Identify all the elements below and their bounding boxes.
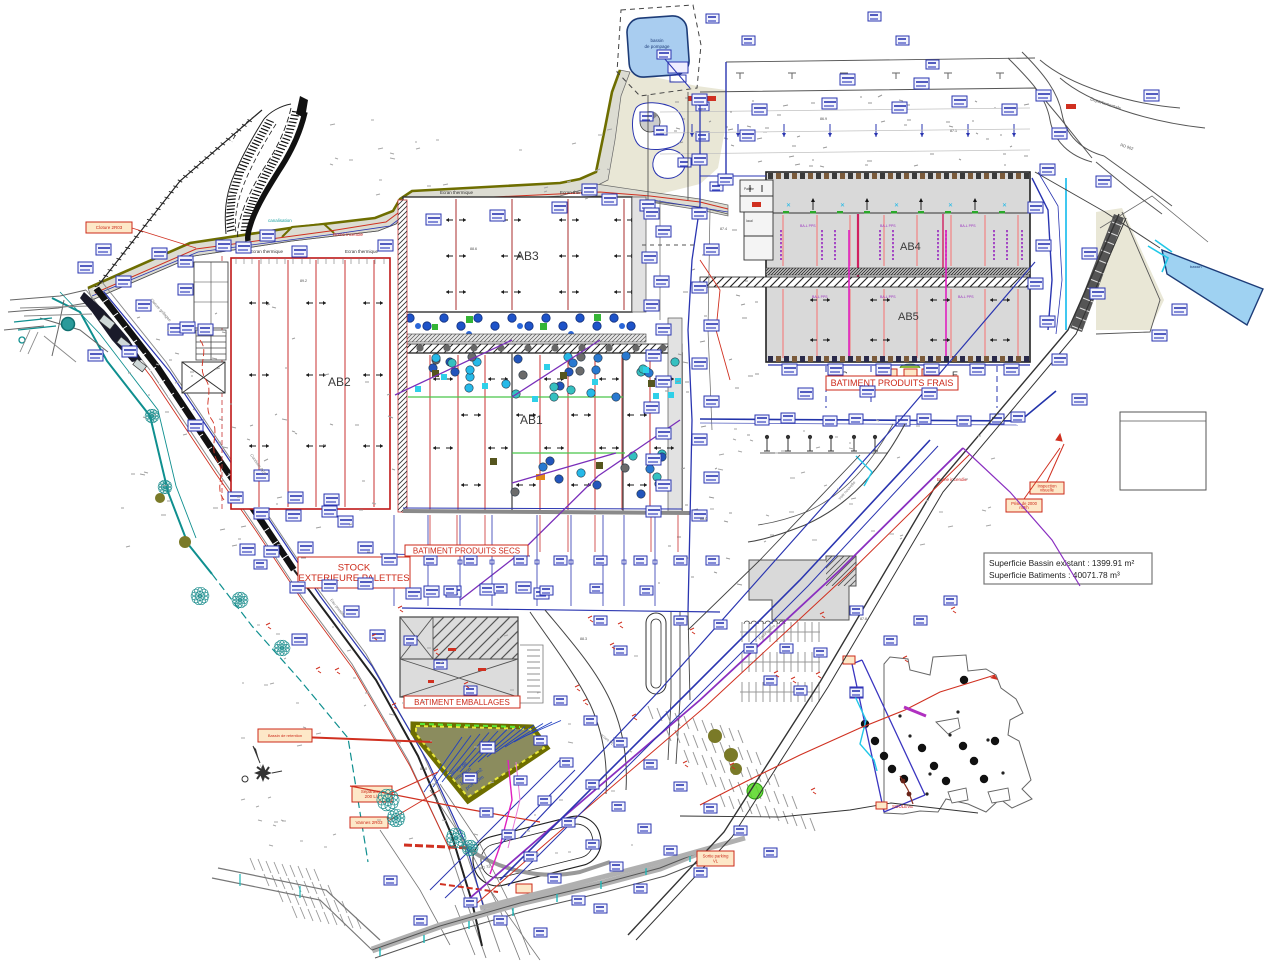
svg-text:Vannes 2R03: Vannes 2R03 <box>356 820 383 825</box>
svg-text:Superficie Bassin existant : 1: Superficie Bassin existant : 1399.91 m² <box>989 558 1134 568</box>
svg-text:86.9: 86.9 <box>820 117 827 121</box>
svg-text:Cloture 2R03: Cloture 2R03 <box>96 225 123 230</box>
svg-text:bassin: bassin <box>1190 264 1202 269</box>
svg-text:BATIMENT EMBALLAGES: BATIMENT EMBALLAGES <box>414 698 510 707</box>
svg-text:BA-L PPS: BA-L PPS <box>812 295 828 299</box>
svg-text:BA-L PPS: BA-L PPS <box>960 224 976 228</box>
svg-text:visuelle: visuelle <box>1040 488 1055 493</box>
svg-text:BA-L PPS: BA-L PPS <box>800 224 816 228</box>
svg-text:88.3: 88.3 <box>580 637 587 641</box>
svg-text:89.2: 89.2 <box>300 279 307 283</box>
svg-text:BA-L PPS: BA-L PPS <box>958 295 974 299</box>
svg-text:BATIMENT PRODUITS FRAIS: BATIMENT PRODUITS FRAIS <box>831 378 954 388</box>
svg-text:87.1: 87.1 <box>950 129 957 133</box>
svg-text:Superficie Batiments : 40071.7: Superficie Batiments : 40071.78 m³ <box>989 570 1120 580</box>
svg-text:88.6: 88.6 <box>470 247 477 251</box>
svg-text:AB4: AB4 <box>900 241 921 253</box>
svg-text:BA-L PPS: BA-L PPS <box>880 295 896 299</box>
svg-text:VL: VL <box>713 859 719 864</box>
svg-text:BA-L PPS: BA-L PPS <box>880 224 896 228</box>
svg-text:local: local <box>746 219 753 223</box>
svg-text:Ecran thermique: Ecran thermique <box>345 249 379 254</box>
svg-text:✕: ✕ <box>786 203 791 209</box>
svg-text:AB3: AB3 <box>516 249 539 263</box>
svg-text:Ecran thermique: Ecran thermique <box>440 190 474 195</box>
svg-text:88.0: 88.0 <box>700 517 707 521</box>
svg-text:de pompage: de pompage <box>644 44 670 49</box>
svg-text:89.0: 89.0 <box>420 767 427 771</box>
svg-text:✕: ✕ <box>894 203 899 209</box>
svg-text:87.8: 87.8 <box>860 617 867 621</box>
svg-text:✕: ✕ <box>840 203 845 209</box>
svg-text:canalisation: canalisation <box>268 218 292 223</box>
svg-text:87.4: 87.4 <box>720 227 727 231</box>
svg-text:BATIMENT PRODUITS SECS: BATIMENT PRODUITS SECS <box>413 546 520 555</box>
svg-text:AB5: AB5 <box>898 311 919 323</box>
svg-text:Palette: Palette <box>744 187 754 191</box>
svg-text:EXTERIEURE PALETTES: EXTERIEURE PALETTES <box>298 573 409 584</box>
svg-text:Ecran thermique: Ecran thermique <box>250 249 284 254</box>
svg-text:Borne incendie: Borne incendie <box>333 232 364 237</box>
svg-text:✕: ✕ <box>1002 203 1007 209</box>
svg-text:bassin: bassin <box>650 38 664 43</box>
svg-text:Bassin de retention: Bassin de retention <box>268 733 302 738</box>
svg-text:✕: ✕ <box>948 203 953 209</box>
svg-text:AB2: AB2 <box>328 375 351 389</box>
